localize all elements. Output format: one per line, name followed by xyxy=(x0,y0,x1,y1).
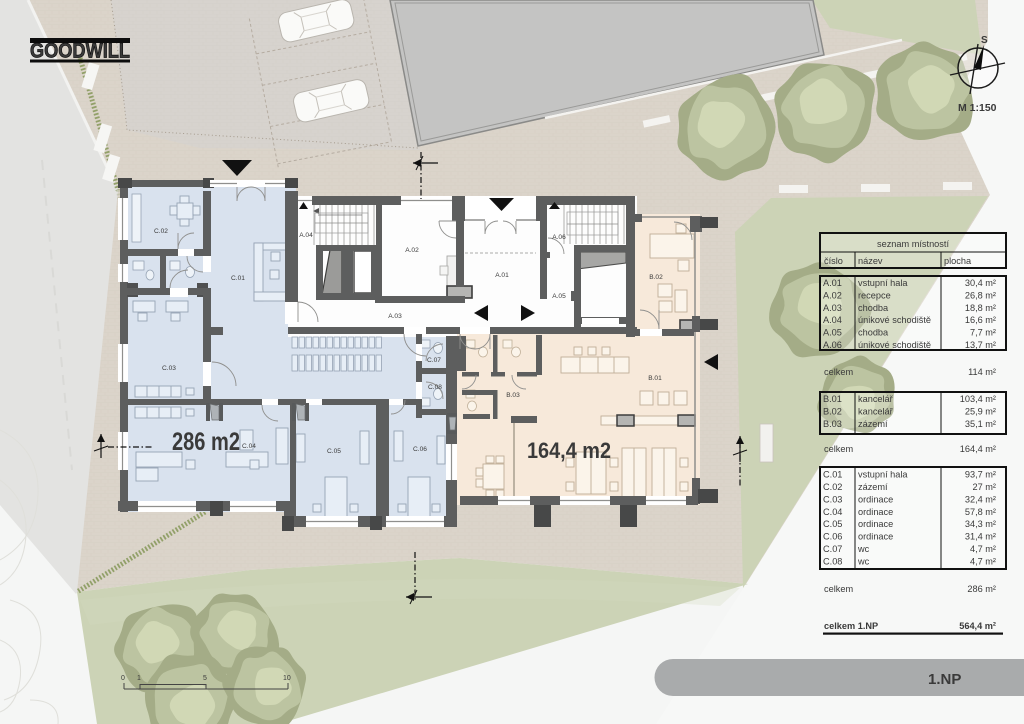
svg-text:C.05: C.05 xyxy=(823,519,842,529)
svg-text:C.02: C.02 xyxy=(823,482,842,492)
svg-text:chodba: chodba xyxy=(858,328,889,338)
svg-text:wc: wc xyxy=(857,556,870,566)
svg-text:B.01: B.01 xyxy=(648,375,662,382)
svg-text:A.03: A.03 xyxy=(388,313,402,320)
svg-text:30,4 m²: 30,4 m² xyxy=(965,278,996,288)
svg-text:chodba: chodba xyxy=(858,303,889,313)
svg-text:164,4 m2: 164,4 m2 xyxy=(527,438,611,463)
svg-text:A.02: A.02 xyxy=(823,290,842,300)
svg-text:vstupní hala: vstupní hala xyxy=(858,470,908,480)
svg-text:ordinace: ordinace xyxy=(858,507,893,517)
svg-text:wc: wc xyxy=(857,544,870,554)
svg-text:31,4 m²: 31,4 m² xyxy=(965,532,996,542)
svg-text:číslo: číslo xyxy=(824,256,843,266)
svg-text:ordinace: ordinace xyxy=(858,532,893,542)
svg-text:0: 0 xyxy=(121,675,125,682)
svg-text:35,1 m²: 35,1 m² xyxy=(965,419,996,429)
svg-text:C.06: C.06 xyxy=(823,532,842,542)
svg-text:34,3 m²: 34,3 m² xyxy=(965,519,996,529)
svg-text:1: 1 xyxy=(137,675,141,682)
svg-text:název: název xyxy=(858,256,883,266)
svg-text:286 m²: 286 m² xyxy=(967,584,996,594)
svg-text:27 m²: 27 m² xyxy=(973,482,997,492)
svg-text:C.08: C.08 xyxy=(428,384,442,391)
svg-text:celkem: celkem xyxy=(824,367,853,377)
svg-text:celkem: celkem xyxy=(824,444,853,454)
svg-text:S: S xyxy=(981,35,988,46)
svg-text:A.03: A.03 xyxy=(823,303,842,313)
svg-text:A.04: A.04 xyxy=(299,232,313,239)
svg-text:A.01: A.01 xyxy=(495,272,509,279)
svg-text:A.06: A.06 xyxy=(552,234,566,241)
svg-text:26,8 m²: 26,8 m² xyxy=(965,290,996,300)
svg-text:C.01: C.01 xyxy=(823,470,842,480)
svg-text:C.08: C.08 xyxy=(823,556,842,566)
svg-text:93,7 m²: 93,7 m² xyxy=(965,470,996,480)
svg-text:32,4 m²: 32,4 m² xyxy=(965,494,996,504)
svg-text:zázemí: zázemí xyxy=(858,482,888,492)
svg-text:kancelář: kancelář xyxy=(858,407,894,417)
svg-text:únikové schodiště: únikové schodiště xyxy=(858,315,931,325)
svg-text:A.04: A.04 xyxy=(823,315,842,325)
svg-text:B.02: B.02 xyxy=(823,407,842,417)
svg-text:C.03: C.03 xyxy=(823,494,842,504)
svg-text:25,9 m²: 25,9 m² xyxy=(965,407,996,417)
svg-text:A.06: A.06 xyxy=(823,340,842,350)
svg-text:C.04: C.04 xyxy=(242,443,256,450)
svg-text:vstupní hala: vstupní hala xyxy=(858,278,908,288)
svg-text:B.01: B.01 xyxy=(823,394,842,404)
svg-text:1.NP: 1.NP xyxy=(928,671,961,688)
svg-text:C.07: C.07 xyxy=(427,357,441,364)
svg-text:7,7 m²: 7,7 m² xyxy=(970,328,996,338)
svg-text:M 1:150: M 1:150 xyxy=(958,102,997,114)
svg-text:10: 10 xyxy=(283,675,291,682)
svg-text:A.02: A.02 xyxy=(405,247,419,254)
svg-text:C.07: C.07 xyxy=(823,544,842,554)
svg-text:4,7 m²: 4,7 m² xyxy=(970,544,996,554)
svg-text:C.04: C.04 xyxy=(823,507,842,517)
svg-text:B.03: B.03 xyxy=(506,392,520,399)
svg-text:C.01: C.01 xyxy=(231,275,245,282)
svg-text:zázemí: zázemí xyxy=(858,419,888,429)
svg-text:103,4 m²: 103,4 m² xyxy=(960,394,996,404)
svg-text:13,7 m²: 13,7 m² xyxy=(965,340,996,350)
svg-text:5: 5 xyxy=(203,675,207,682)
svg-text:C.03: C.03 xyxy=(162,365,176,372)
svg-text:ordinace: ordinace xyxy=(858,494,893,504)
svg-text:564,4 m²: 564,4 m² xyxy=(959,621,996,631)
svg-text:ordinace: ordinace xyxy=(858,519,893,529)
svg-text:C.02: C.02 xyxy=(154,228,168,235)
svg-text:B.03: B.03 xyxy=(823,419,842,429)
svg-text:114 m²: 114 m² xyxy=(968,367,996,377)
svg-text:GOODWILL: GOODWILL xyxy=(30,40,130,63)
svg-text:seznam místností: seznam místností xyxy=(877,239,949,249)
svg-text:164,4 m²: 164,4 m² xyxy=(960,444,996,454)
svg-text:C.06: C.06 xyxy=(413,446,427,453)
svg-text:18,8 m²: 18,8 m² xyxy=(965,303,996,313)
svg-text:4,7 m²: 4,7 m² xyxy=(970,556,996,566)
svg-text:C.05: C.05 xyxy=(327,448,341,455)
svg-text:A.01: A.01 xyxy=(823,278,842,288)
svg-text:kancelář: kancelář xyxy=(858,394,894,404)
svg-text:celkem 1.NP: celkem 1.NP xyxy=(824,621,878,631)
svg-text:recepce: recepce xyxy=(858,290,891,300)
svg-text:plocha: plocha xyxy=(944,256,972,266)
svg-text:57,8 m²: 57,8 m² xyxy=(965,507,996,517)
svg-text:A.05: A.05 xyxy=(823,328,842,338)
svg-text:286 m2: 286 m2 xyxy=(172,428,240,456)
svg-text:únikové schodiště: únikové schodiště xyxy=(858,340,931,350)
svg-text:16,6 m²: 16,6 m² xyxy=(965,315,996,325)
svg-text:A.05: A.05 xyxy=(552,293,566,300)
svg-text:B.02: B.02 xyxy=(649,274,663,281)
svg-text:celkem: celkem xyxy=(824,584,853,594)
